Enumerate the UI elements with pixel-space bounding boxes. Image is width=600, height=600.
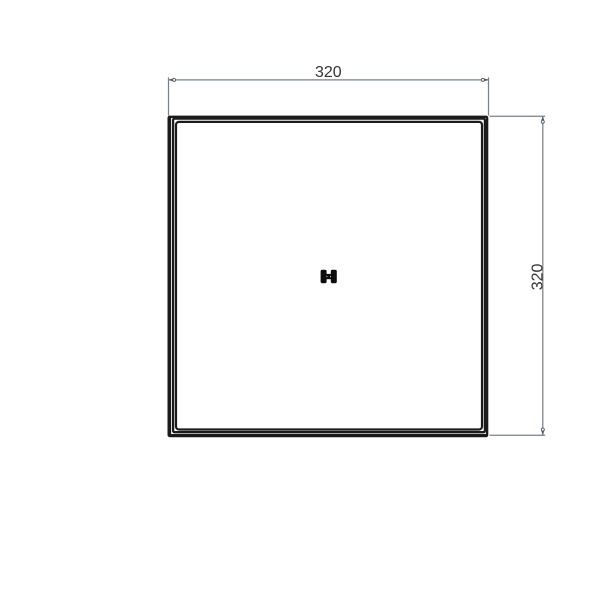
svg-text:320: 320 xyxy=(315,64,342,81)
svg-text:320: 320 xyxy=(529,263,546,290)
